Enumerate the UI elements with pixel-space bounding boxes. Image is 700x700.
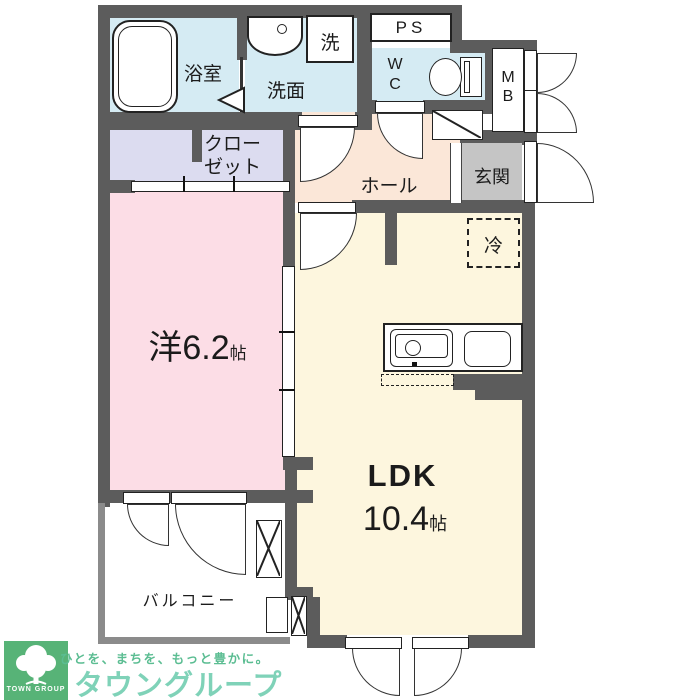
wall-bath-bottom [98, 112, 302, 130]
refrigerator-label: 冷 [467, 231, 520, 258]
bathroom-folding-door-icon [216, 84, 248, 116]
wall-bottom-right-seg [468, 635, 535, 648]
toilet-bowl [429, 58, 462, 96]
mb-door-swing-bottom [537, 93, 577, 133]
bathtub-inner [118, 26, 172, 107]
bathroom-label: 浴室 [168, 59, 238, 86]
hall-ldk-door-panel [298, 202, 356, 213]
washer-label: 洗 [306, 28, 354, 55]
wall-ldk-left-bottom [307, 597, 320, 648]
western-room-unit: 帖 [230, 344, 247, 363]
town-group-mark-text: TOWN GROUP [4, 686, 68, 693]
mb-door-panel-top [524, 50, 537, 93]
meter-box-label-b: B [503, 88, 514, 105]
ldk-door-panel-left [345, 637, 402, 649]
kitchen-counter-edge [381, 374, 454, 386]
western-room-name: 洋6.2 [148, 329, 229, 367]
closet-label: クロー ゼット [190, 133, 275, 179]
kitchen-faucet [405, 340, 421, 356]
utility-box [266, 597, 288, 633]
ldk-size-label: 10.4帖 [325, 500, 485, 539]
wall-hall-stub-vert [385, 213, 397, 265]
wall-partition-jog-a [283, 457, 313, 470]
balcony-label: バルコニー [130, 587, 250, 611]
kitchen-stove [464, 331, 511, 367]
ldk-floor-lower [318, 597, 522, 635]
wall-bath-divider [237, 14, 247, 60]
balcony-wall-bottom [98, 637, 290, 644]
wall-hall-ldk [352, 200, 535, 213]
toilet-tank-inner [464, 61, 470, 93]
kitchen-sink-dot [412, 362, 417, 366]
ldk-size-value: 10.4 [363, 500, 429, 538]
wc-label-c: C [389, 76, 401, 93]
shoe-cabinet [432, 110, 483, 140]
wc-label: W C [379, 55, 411, 95]
ldk-door-panel-right [412, 637, 469, 649]
ldk-size-unit: 帖 [429, 514, 447, 534]
balcony-window-panel-right [171, 492, 247, 504]
kitchen-sink-inner [395, 334, 448, 358]
closet-label-line1: クロー [204, 134, 261, 155]
ldk-label: LDK [330, 458, 475, 494]
wc-door-panel [375, 101, 425, 113]
wc-label-w: W [387, 56, 402, 73]
balcony-wall-left [98, 503, 105, 643]
wall-right-lower [522, 203, 535, 648]
ldk-door-swing-left [352, 648, 400, 696]
balcony-window-panel-left [123, 492, 170, 504]
entrance-label: 玄関 [462, 163, 522, 189]
floorplan-image: PS 洗 M B 冷 [0, 0, 700, 700]
western-room-label: 洋6.2帖 [120, 320, 275, 369]
utility-x-mark [292, 597, 305, 634]
ldk-floor [295, 213, 522, 597]
washroom-door-panel [298, 115, 358, 127]
ldk-door-swing-right [414, 648, 462, 696]
mb-door-swing-top [537, 53, 577, 93]
meter-box-label: M B [492, 68, 524, 106]
washbasin-drain [277, 24, 287, 34]
washroom-label: 洗面 [250, 76, 322, 103]
closet-sliding-door [131, 181, 290, 192]
logo-company-name: タウングループ [74, 662, 304, 700]
ac-unit-x-mark [257, 521, 280, 576]
pipe-space-label: PS [370, 18, 452, 38]
meter-box-label-m: M [501, 69, 514, 86]
closet-label-line2: ゼット [204, 157, 261, 178]
shoe-cabinet-diagonal [433, 111, 481, 138]
entrance-door-swing [537, 143, 594, 203]
washbasin [247, 16, 303, 56]
kitchen-step-b [475, 390, 522, 400]
balcony-ac-unit [256, 520, 282, 578]
wall-left [98, 5, 110, 507]
partition-tick-1 [279, 331, 295, 333]
tree-icon [4, 641, 68, 687]
hall-label: ホール [350, 171, 428, 198]
partition-tick-2 [279, 389, 295, 391]
entrance-step [450, 143, 462, 203]
room-ldk-sliding-partition [282, 266, 295, 457]
kitchen-step-a [453, 374, 522, 390]
mb-door-panel-bottom [524, 90, 537, 133]
entrance-door-panel [524, 141, 537, 203]
town-group-logo-mark: TOWN GROUP [4, 641, 68, 700]
closet-door-tick-1 [183, 176, 185, 192]
wall-closet-left-stub [98, 180, 135, 193]
utility-x-box [291, 596, 307, 636]
